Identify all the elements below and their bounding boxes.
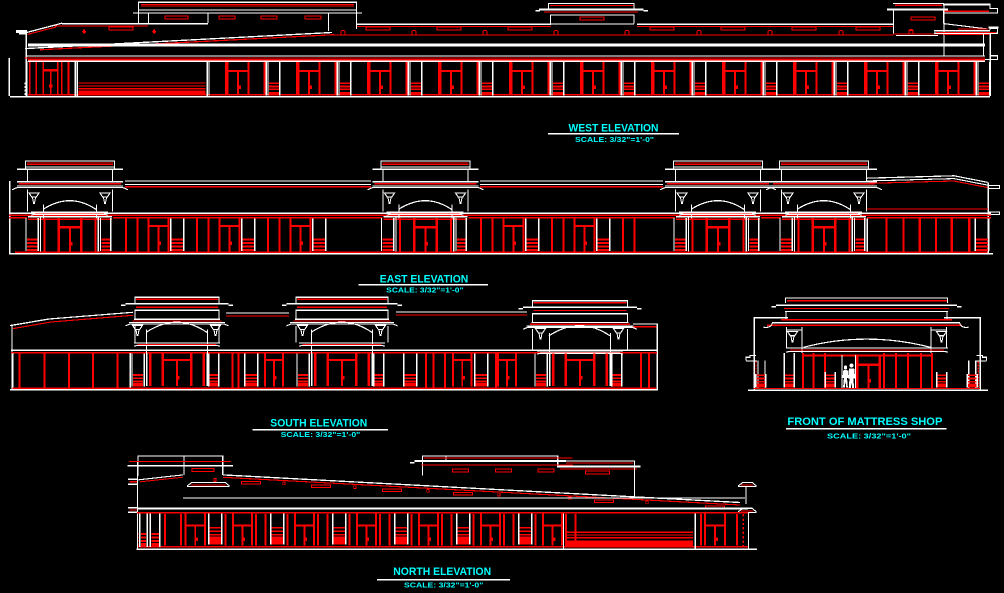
svg-text:NORTH ELEVATION: NORTH ELEVATION xyxy=(393,566,491,578)
svg-text:FRONT OF MATTRESS SHOP: FRONT OF MATTRESS SHOP xyxy=(787,416,942,428)
svg-text:SCALE: 3/32"=1'-0": SCALE: 3/32"=1'-0" xyxy=(404,580,484,589)
svg-text:SCALE: 3/32"=1'-0": SCALE: 3/32"=1'-0" xyxy=(281,430,361,439)
svg-text:SCALE: 3/32"=1'-0": SCALE: 3/32"=1'-0" xyxy=(827,431,911,440)
svg-text:SCALE: 3/32"=1'-0": SCALE: 3/32"=1'-0" xyxy=(386,286,464,295)
svg-text:WEST ELEVATION: WEST ELEVATION xyxy=(569,122,659,134)
svg-text:SOUTH ELEVATION: SOUTH ELEVATION xyxy=(270,418,367,430)
svg-text:EAST ELEVATION: EAST ELEVATION xyxy=(380,273,469,285)
svg-text:SCALE: 3/32"=1'-0": SCALE: 3/32"=1'-0" xyxy=(575,135,654,144)
